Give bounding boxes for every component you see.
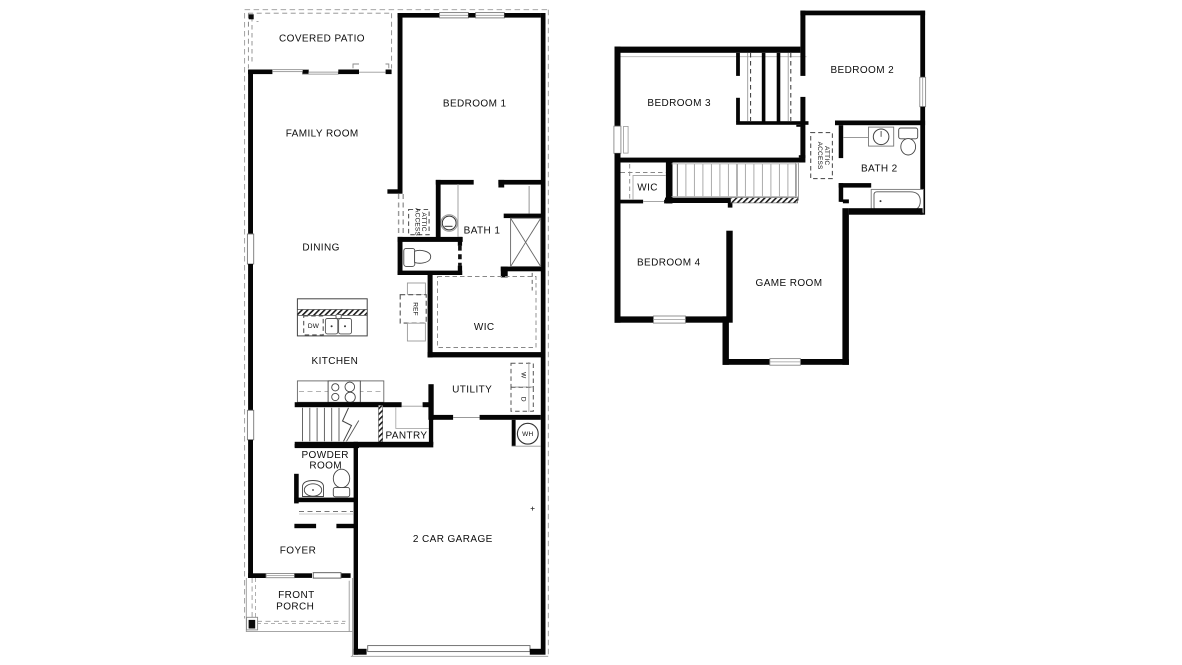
svg-text:BEDROOM 1: BEDROOM 1 [443, 98, 507, 109]
svg-text:FAMILY ROOM: FAMILY ROOM [286, 129, 359, 140]
svg-text:WIC: WIC [474, 322, 495, 333]
svg-text:PORCH: PORCH [276, 601, 314, 612]
svg-text:DW: DW [308, 323, 320, 330]
svg-text:2 CAR GARAGE: 2 CAR GARAGE [413, 534, 493, 545]
svg-text:DINING: DINING [302, 242, 339, 253]
svg-text:UTILITY: UTILITY [452, 385, 492, 396]
svg-text:D: D [520, 397, 527, 402]
svg-text:ACCESS: ACCESS [413, 208, 420, 236]
svg-text:BEDROOM 4: BEDROOM 4 [637, 258, 701, 269]
svg-text:FOYER: FOYER [280, 546, 316, 557]
svg-text:FRONT: FRONT [278, 590, 314, 601]
svg-text:REF: REF [411, 302, 418, 316]
svg-text:BEDROOM 2: BEDROOM 2 [830, 65, 894, 76]
svg-text:COVERED PATIO: COVERED PATIO [279, 33, 365, 44]
svg-text:W: W [520, 372, 527, 379]
svg-text:WH: WH [522, 431, 533, 438]
svg-text:ACCESS: ACCESS [816, 142, 823, 170]
svg-text:BEDROOM 3: BEDROOM 3 [647, 98, 711, 109]
svg-text:BATH 1: BATH 1 [464, 225, 501, 236]
svg-text:BATH 2: BATH 2 [861, 164, 898, 175]
svg-text:WIC: WIC [637, 182, 658, 193]
svg-text:KITCHEN: KITCHEN [312, 356, 359, 367]
svg-text:ROOM: ROOM [309, 460, 342, 471]
svg-text:GAME ROOM: GAME ROOM [756, 278, 823, 289]
svg-text:ATTIC: ATTIC [823, 146, 830, 165]
svg-text:PANTRY: PANTRY [385, 430, 427, 441]
